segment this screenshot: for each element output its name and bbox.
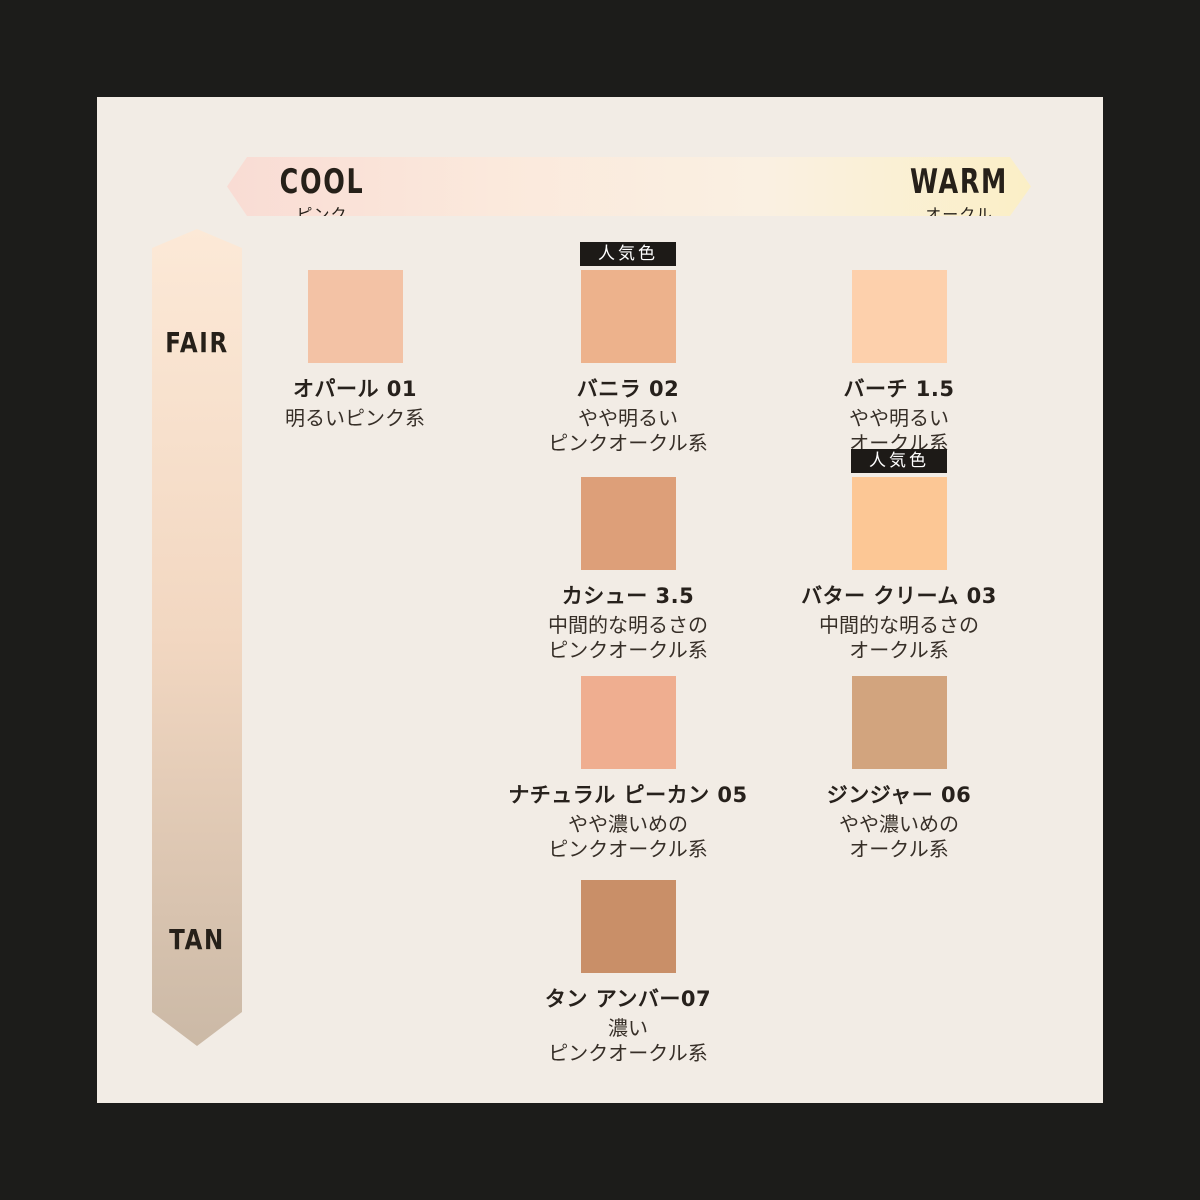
shade-name: タン アンバー07 [498, 983, 758, 1013]
shade-cell: ナチュラル ピーカン 05 やや濃いめのピンクオークル系 [498, 676, 758, 862]
shade-cell: 人気色 バニラ 02 やや明るいピンクオークル系 [498, 270, 758, 456]
popular-badge: 人気色 [580, 242, 676, 266]
shade-name: カシュー 3.5 [498, 580, 758, 610]
shade-desc: 中間的な明るさのピンクオークル系 [498, 613, 758, 663]
popular-badge: 人気色 [851, 449, 947, 473]
shade-swatch [581, 270, 676, 363]
shade-cell: オパール 01 明るいピンク系 [225, 270, 485, 431]
shade-desc: やや濃いめのオークル系 [769, 812, 1029, 862]
shade-desc: 明るいピンク系 [225, 406, 485, 431]
shade-desc: やや明るいピンクオークル系 [498, 406, 758, 456]
shade-swatch [581, 880, 676, 973]
shade-desc: 濃いピンクオークル系 [498, 1016, 758, 1066]
shade-desc: 中間的な明るさのオークル系 [769, 613, 1029, 663]
shade-swatch [852, 270, 947, 363]
shade-cell: カシュー 3.5 中間的な明るさのピンクオークル系 [498, 477, 758, 663]
shade-swatch [308, 270, 403, 363]
shade-name: ナチュラル ピーカン 05 [498, 779, 758, 809]
shade-name: オパール 01 [225, 373, 485, 403]
shade-swatch [581, 477, 676, 570]
shade-cell: ジンジャー 06 やや濃いめのオークル系 [769, 676, 1029, 862]
shade-cell: 人気色 バター クリーム 03 中間的な明るさのオークル系 [769, 477, 1029, 663]
shade-chart-panel: COOL ピンク WARM オークル FAIR TAN オパール 01 明るいピ… [97, 97, 1103, 1103]
shade-name: バニラ 02 [498, 373, 758, 403]
shade-cell: タン アンバー07 濃いピンクオークル系 [498, 880, 758, 1066]
shade-desc: やや濃いめのピンクオークル系 [498, 812, 758, 862]
shade-swatch [581, 676, 676, 769]
shade-swatch [852, 676, 947, 769]
shade-cell: バーチ 1.5 やや明るいオークル系 [769, 270, 1029, 456]
shade-grid: オパール 01 明るいピンク系 人気色 バニラ 02 やや明るいピンクオークル系… [97, 97, 1103, 1103]
shade-name: ジンジャー 06 [769, 779, 1029, 809]
shade-swatch [852, 477, 947, 570]
shade-name: バター クリーム 03 [769, 580, 1029, 610]
shade-name: バーチ 1.5 [769, 373, 1029, 403]
